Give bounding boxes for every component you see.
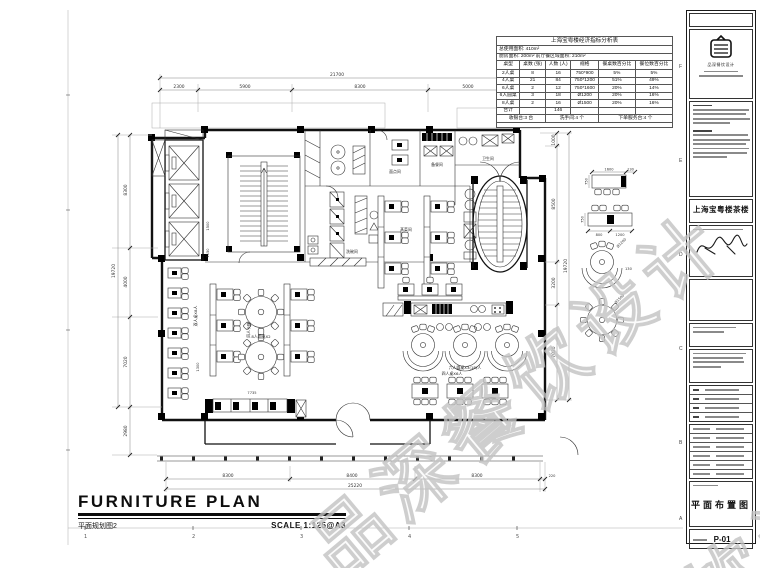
legend-dim: Ø1200 (615, 236, 628, 249)
designer-signature (691, 232, 751, 262)
legend-dim: 1600 (604, 168, 614, 172)
notes-box (689, 101, 753, 197)
info-box-2 (689, 349, 753, 383)
dim-left-1: 8300 (123, 184, 129, 195)
legend-dim: 130 (625, 267, 633, 271)
col-tick-5: 5 (516, 534, 519, 540)
dim-right-1: 1000 (551, 134, 557, 145)
row-letter: C (679, 346, 683, 352)
table-row: 合计146 (497, 107, 673, 115)
dim-inner-2: 1150 (206, 248, 210, 258)
room-label: 面点间 (389, 169, 401, 174)
kitchen (305, 130, 520, 266)
col-tick-3: 3 (300, 534, 303, 540)
furniture-legend: 1600 130 750 800 1200 750 Ø1200 130 Ø150… (580, 168, 637, 342)
plan-title-block: FURNITURE PLAN 平面规划图2 SCALE 1:125@A3 (78, 492, 346, 531)
service-counter (383, 303, 506, 316)
col-tick-1: 1 (84, 534, 87, 540)
room-label: 洗碗间 (346, 249, 358, 254)
project-name-box: 上海宝粤楼茶楼 (689, 199, 753, 223)
stats-title: 上海宝粤楼经济指标分析表 (497, 37, 673, 46)
col-header: 人数 (人) (545, 61, 571, 70)
col-header: 餐位数百分比 (635, 61, 672, 70)
dim-right-total: 19720 (563, 259, 569, 273)
dim-top-total: 21700 (330, 72, 344, 78)
drawing-number: P-01 (714, 535, 731, 544)
project-name: 上海宝粤楼茶楼 (690, 204, 752, 215)
elevator-2 (166, 184, 200, 218)
room-label: 卫生间 (482, 156, 494, 161)
col-header: 规格 (571, 61, 598, 70)
stair-straight (228, 156, 300, 252)
canopy-outlines (152, 103, 540, 128)
col-tick-2: 2 (192, 534, 195, 540)
dim-bottom-2: 8400 (346, 473, 357, 479)
dim-right-2: 8500 (551, 198, 557, 209)
fields-box (689, 424, 753, 479)
dim-top-4: 5000 (462, 84, 473, 90)
legend-dim: 750 (581, 215, 585, 223)
table-row: 2人桌816 750*9005%5% (497, 70, 673, 78)
drawing-title-box: 平面布置图 (689, 481, 753, 527)
table-label: 四人桌X6人 (442, 371, 463, 376)
dim-left-3: 7020 (123, 356, 129, 367)
col-header: 桌型 (497, 61, 520, 70)
col-header: 桌数 (张) (520, 61, 546, 70)
legend-dim: Ø1500 (613, 292, 626, 305)
table-row: 6人圆桌318 Ø120020%16% (497, 92, 673, 100)
drawing-number-box: P-01 (689, 529, 753, 549)
row-letter: D (679, 252, 683, 258)
title-block-spacer (689, 13, 753, 27)
info-box-1 (689, 323, 753, 347)
room-label: 蒸菜间 (400, 227, 412, 232)
dim-left-2: 4000 (123, 276, 129, 287)
logo-box: 品深餐饮设计 (689, 29, 753, 99)
legend-dim: 800 (596, 233, 604, 237)
stats-usage: 总使用面积: 410m² (497, 46, 673, 54)
table-footer: 收银台:3 台 洗手间:4 个 下单服务台:4 个 (497, 115, 673, 123)
empty-box (689, 279, 753, 321)
legend-dim: 130 (627, 168, 635, 172)
company-logo-icon (708, 34, 734, 60)
dim-left-lower: 2980 (123, 425, 129, 436)
dim-top-2: 5900 (239, 84, 250, 90)
dim-left-total: 19720 (111, 264, 117, 278)
signature-box (689, 225, 753, 277)
dim-right-4: 7020 (551, 346, 557, 357)
row-letter: E (679, 158, 682, 164)
company-brand: 品深餐饮设计 (690, 62, 752, 68)
dim-right-3: 3200 (551, 277, 557, 288)
dim-bottom-total: 25220 (348, 483, 362, 489)
curtain-wall (157, 456, 543, 461)
dim-bottom-1: 8300 (222, 473, 233, 479)
title-block: 品深餐饮设计 上海宝粤楼茶楼 (686, 10, 756, 544)
table-row: 6人桌212 750*160020%14% (497, 85, 673, 93)
revision-box (689, 385, 753, 422)
row-letter: A (679, 516, 682, 522)
stats-areas: 厨房面积: 200m² 前厅餐区域面积: 210m² (497, 53, 673, 61)
stair-oval (473, 162, 527, 272)
elevator-block (152, 130, 203, 260)
table-row: 4人桌2184 750*120051%49% (497, 77, 673, 85)
dim-bottom-4: 220 (549, 474, 557, 478)
dim-bottom-3: 8300 (471, 473, 482, 479)
table-label: 双人桌X8人 (193, 306, 198, 327)
room-label: 备餐间 (431, 162, 443, 167)
plan-title-zh: 平面规划图2 (78, 521, 117, 531)
table-row: 8人桌216 Ø150020%16% (497, 100, 673, 108)
plan-title-en: FURNITURE PLAN (78, 492, 346, 516)
columns (148, 126, 546, 420)
plan-scale: SCALE 1:125@A3 (271, 521, 346, 531)
elevator-1 (166, 146, 200, 180)
dim-top-3: 8300 (354, 84, 365, 90)
table-label: 四人卡座 (246, 322, 251, 338)
legend-dim: 750 (585, 177, 589, 185)
dim-top-1: 2300 (173, 84, 184, 90)
table-label: 六人圆桌X3(18)人 (449, 365, 482, 370)
dim-inner-4: 7735 (247, 391, 256, 395)
economic-stats-table: 上海宝粤楼经济指标分析表 总使用面积: 410m² 厨房面积: 200m² 前厅… (496, 36, 673, 128)
dim-inner-3: 1300 (196, 362, 200, 372)
col-header: 餐桌数百分比 (598, 61, 635, 70)
drawing-title: 平面布置图 (690, 498, 752, 511)
dim-inner-1: 1500 (206, 221, 210, 231)
legend-dim: 1200 (615, 233, 625, 237)
table-label: 8人圆桌X2 (251, 334, 271, 339)
col-tick-4: 4 (408, 534, 411, 540)
row-letter: B (679, 440, 682, 446)
row-letter: F (679, 64, 682, 70)
elevator-3 (166, 222, 200, 256)
